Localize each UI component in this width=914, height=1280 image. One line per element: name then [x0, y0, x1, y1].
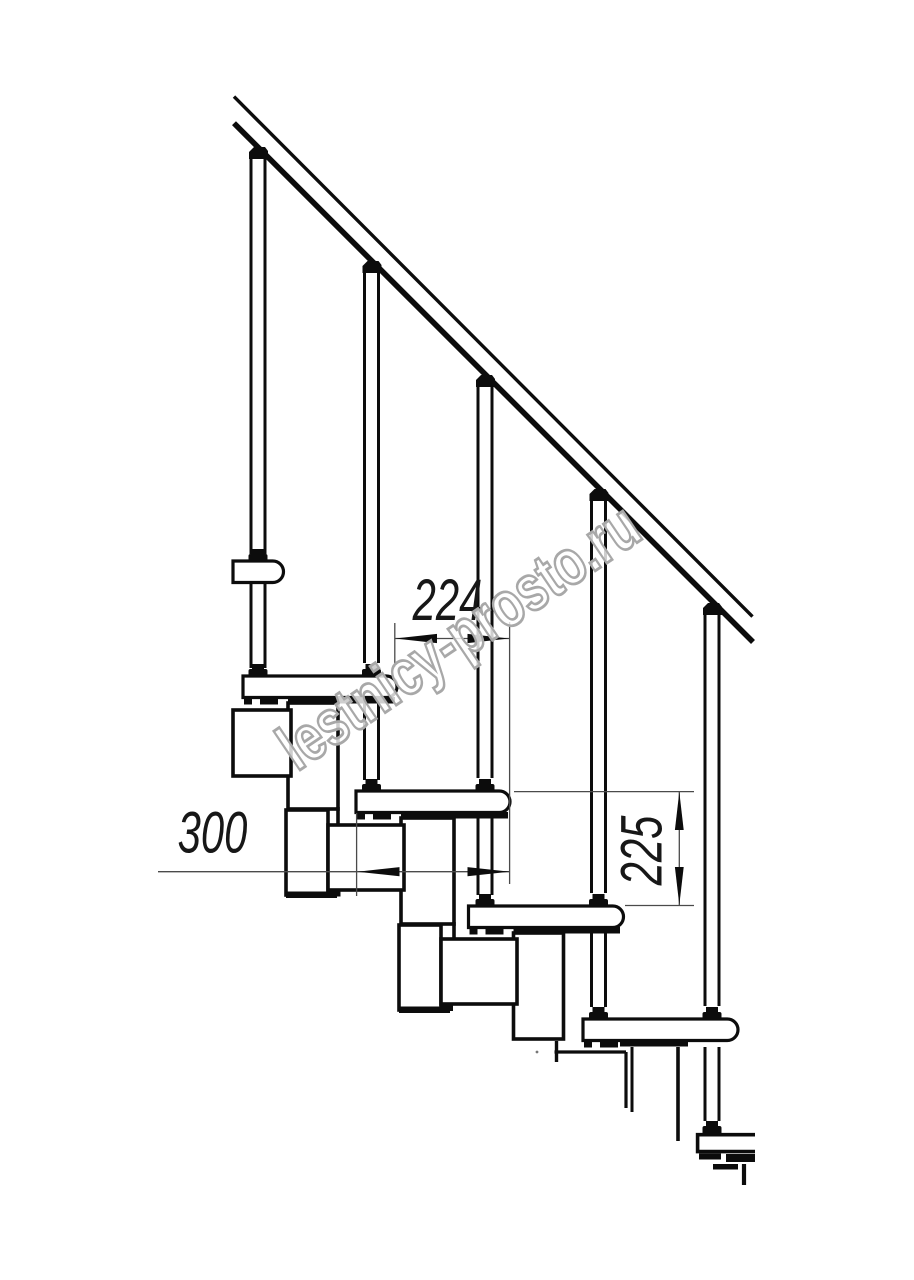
svg-text:300: 300	[178, 800, 248, 865]
svg-text:225: 225	[609, 815, 674, 886]
